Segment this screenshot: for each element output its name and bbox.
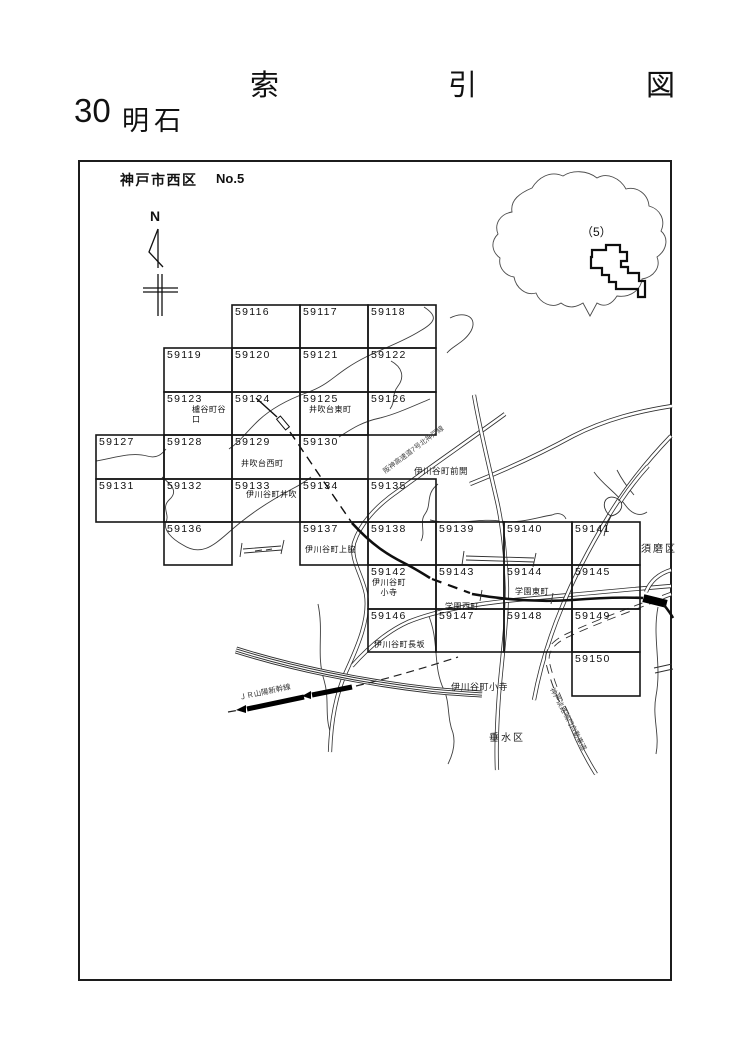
cell-number: 59142 <box>371 566 407 578</box>
cell-number: 59150 <box>575 653 611 665</box>
grid-cell-59130: 59130 <box>300 435 368 479</box>
grid-cell-59148: 59148 <box>504 609 572 652</box>
grid-cell-59136: 59136 <box>164 522 232 565</box>
grid-cell-59119: 59119 <box>164 348 232 392</box>
grid-cell-59125: 59125井吹台東町 <box>300 392 368 435</box>
cell-number: 59122 <box>371 349 407 361</box>
north-arrow-icon <box>143 229 178 316</box>
cell-number: 59116 <box>235 306 270 318</box>
cell-number: 59119 <box>167 349 202 361</box>
cell-number: 59136 <box>167 523 203 535</box>
grid-cell-59124: 59124 <box>232 392 300 435</box>
inset-highlight-area <box>591 245 645 297</box>
cell-number: 59130 <box>303 436 339 448</box>
grid-cell-59144: 59144学園東町 <box>504 565 572 609</box>
cell-number: 59141 <box>575 523 611 535</box>
cell-number: 59139 <box>439 523 475 535</box>
cell-town-label: 井吹台西町 <box>241 459 284 469</box>
grid-cell-59135: 59135 <box>368 479 436 522</box>
sheet-number: 30 <box>74 92 111 130</box>
grid-cell-59118: 59118 <box>368 305 436 348</box>
grid-cell-59140: 59140 <box>504 522 572 565</box>
grid-cell-59143: 59143学園西町 <box>436 565 504 609</box>
cell-number: 59118 <box>371 306 406 318</box>
map-number-label: No.5 <box>216 171 244 186</box>
grid-cell-59126: 59126 <box>368 392 436 435</box>
grid-cell-59116: 59116 <box>232 305 300 348</box>
cell-number: 59146 <box>371 610 407 622</box>
cell-town-label: 伊川谷町 小寺 <box>368 578 410 598</box>
cell-number: 59137 <box>303 523 339 535</box>
region-label: 神戸市西区 <box>120 170 198 190</box>
cell-town-label: 伊川谷町上脇 <box>305 545 356 555</box>
grid-cell-59141: 59141 <box>572 522 640 565</box>
cell-town-label: 井吹台東町 <box>309 405 352 415</box>
cell-number: 59134 <box>303 480 339 492</box>
cell-number: 59127 <box>99 436 135 448</box>
grid-cell-59147: 59147 <box>436 609 504 652</box>
cell-number: 59128 <box>167 436 203 448</box>
ward-label-tarumi: 垂水区 <box>489 729 525 744</box>
grid-cell-59139: 59139 <box>436 522 504 565</box>
cell-town-label: 櫨谷町谷口 <box>192 405 232 425</box>
cell-number: 59124 <box>235 393 271 405</box>
cell-number: 59144 <box>507 566 543 578</box>
cell-number: 59121 <box>303 349 339 361</box>
grid-cell-59146: 59146伊川谷町長坂 <box>368 609 436 652</box>
grid-cell-59150: 59150 <box>572 652 640 696</box>
grid-cell-59145: 59145 <box>572 565 640 609</box>
grid-cell-59137: 59137伊川谷町上脇 <box>300 522 368 565</box>
cell-number: 59120 <box>235 349 271 361</box>
cell-town-label: 学園東町 <box>515 587 549 597</box>
grid-cell-59122: 59122 <box>368 348 436 392</box>
grid-cell-59128: 59128 <box>164 435 232 479</box>
cell-number: 59125 <box>303 393 339 405</box>
town-label-kodera: 伊川谷町小寺 <box>451 680 508 693</box>
grid-cell-59133: 59133伊川谷町井吹 <box>232 479 300 522</box>
inset-map <box>493 172 666 316</box>
cell-number: 59138 <box>371 523 407 535</box>
page-title: 索 引 図 <box>250 62 745 104</box>
north-label: N <box>150 208 160 224</box>
cell-number: 59148 <box>507 610 543 622</box>
cell-number: 59135 <box>371 480 407 492</box>
cell-number: 59149 <box>575 610 611 622</box>
sheet-name: 明石 <box>122 99 186 138</box>
grid-cell-59117: 59117 <box>300 305 368 348</box>
cell-number: 59126 <box>371 393 407 405</box>
grid-cell-59127: 59127 <box>96 435 164 479</box>
inset-area-label: （5） <box>581 223 612 240</box>
grid-cell-59121: 59121 <box>300 348 368 392</box>
grid-cell-59132: 59132 <box>164 479 232 522</box>
town-label-maekai: 伊川谷町前開 <box>414 465 468 477</box>
grid-cell-59131: 59131 <box>96 479 164 522</box>
cell-number: 59143 <box>439 566 475 578</box>
cell-town-label: 伊川谷町井吹 <box>246 490 297 500</box>
cell-number: 59147 <box>439 610 475 622</box>
cell-number: 59117 <box>303 306 338 318</box>
grid-cell-59129: 59129井吹台西町 <box>232 435 300 479</box>
grid-cell-59123: 59123櫨谷町谷口 <box>164 392 232 435</box>
cell-number: 59123 <box>167 393 203 405</box>
shinkansen-bar <box>312 687 352 695</box>
grid-cell-59138: 59138 <box>368 522 436 565</box>
ward-label-suma: 須磨区 <box>641 540 677 555</box>
index-map-page: 索 引 図 30 明石 神戸市西区 No.5 N （5） <box>0 0 750 1061</box>
cell-number: 59131 <box>99 480 135 492</box>
grid-cell-59142: 59142伊川谷町 小寺 <box>368 565 436 609</box>
cell-number: 59140 <box>507 523 543 535</box>
cell-number: 59129 <box>235 436 271 448</box>
cell-number: 59145 <box>575 566 611 578</box>
cell-town-label: 伊川谷町長坂 <box>374 640 425 650</box>
grid-cell-59134: 59134 <box>300 479 368 522</box>
grid-cell-59149: 59149 <box>572 609 640 652</box>
grid-cell-59120: 59120 <box>232 348 300 392</box>
cell-number: 59132 <box>167 480 203 492</box>
